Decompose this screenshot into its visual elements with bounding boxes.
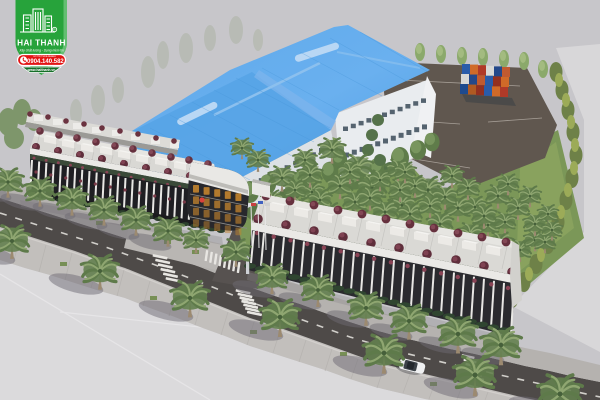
svg-text:Xây chất lượng - Dựng niềm tin: Xây chất lượng - Dựng niềm tin: [18, 49, 63, 53]
svg-text:0904.140.582: 0904.140.582: [27, 59, 64, 65]
svg-text:www.haithanh.vn: www.haithanh.vn: [27, 68, 56, 72]
svg-text:HỖ TRỢ MUA NHANH: HỖ TRỢ MUA NHANH: [33, 55, 56, 58]
svg-text:HAI THANH: HAI THANH: [17, 39, 66, 48]
